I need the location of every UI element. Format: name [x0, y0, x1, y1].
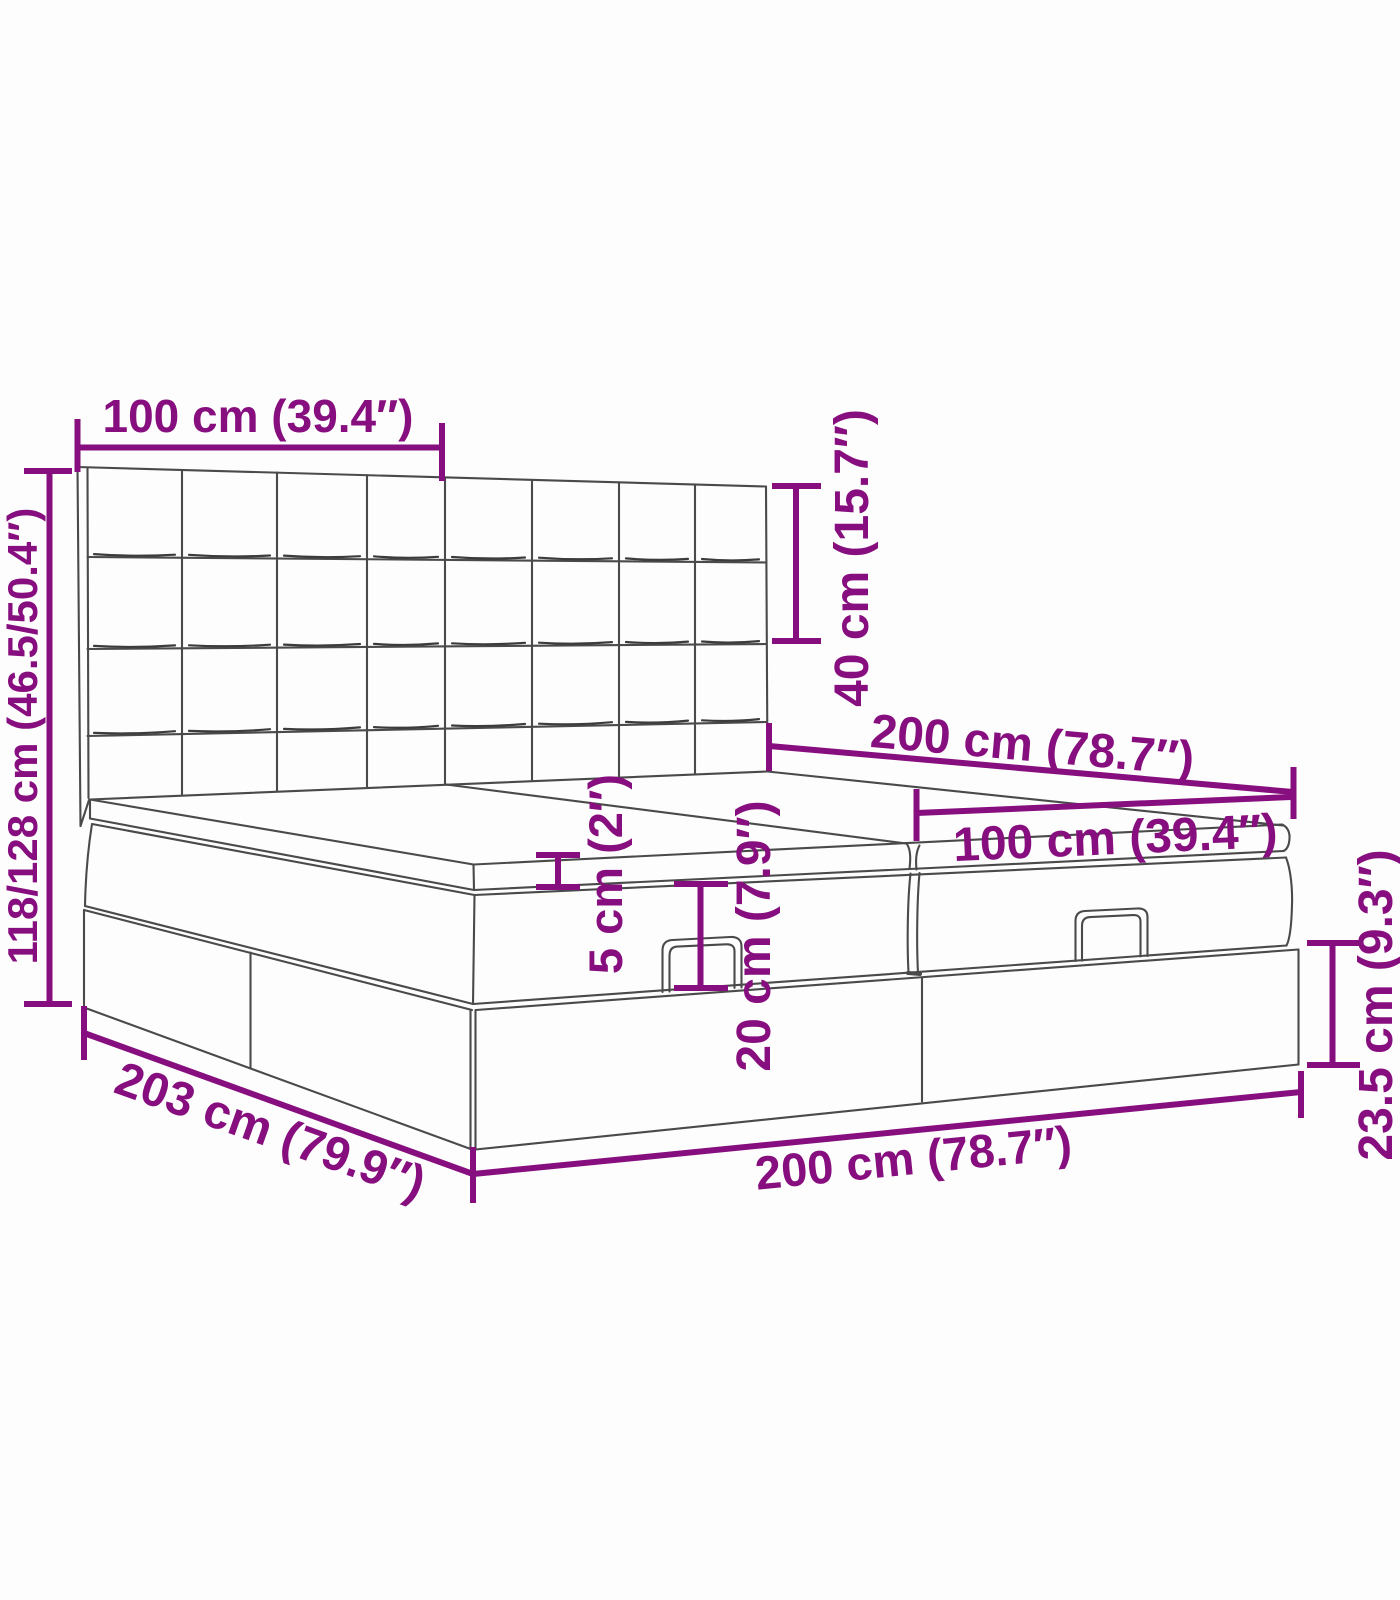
svg-text:40 cm (15.7″): 40 cm (15.7″): [826, 409, 879, 707]
svg-text:23.5 cm (9.3″): 23.5 cm (9.3″): [1350, 849, 1400, 1160]
svg-text:118/128 cm (46.5/50.4″): 118/128 cm (46.5/50.4″): [0, 508, 46, 965]
svg-text:100 cm (39.4″): 100 cm (39.4″): [103, 390, 414, 442]
svg-text:20 cm (7.9″): 20 cm (7.9″): [728, 800, 781, 1071]
svg-text:5 cm (2″): 5 cm (2″): [579, 774, 632, 974]
